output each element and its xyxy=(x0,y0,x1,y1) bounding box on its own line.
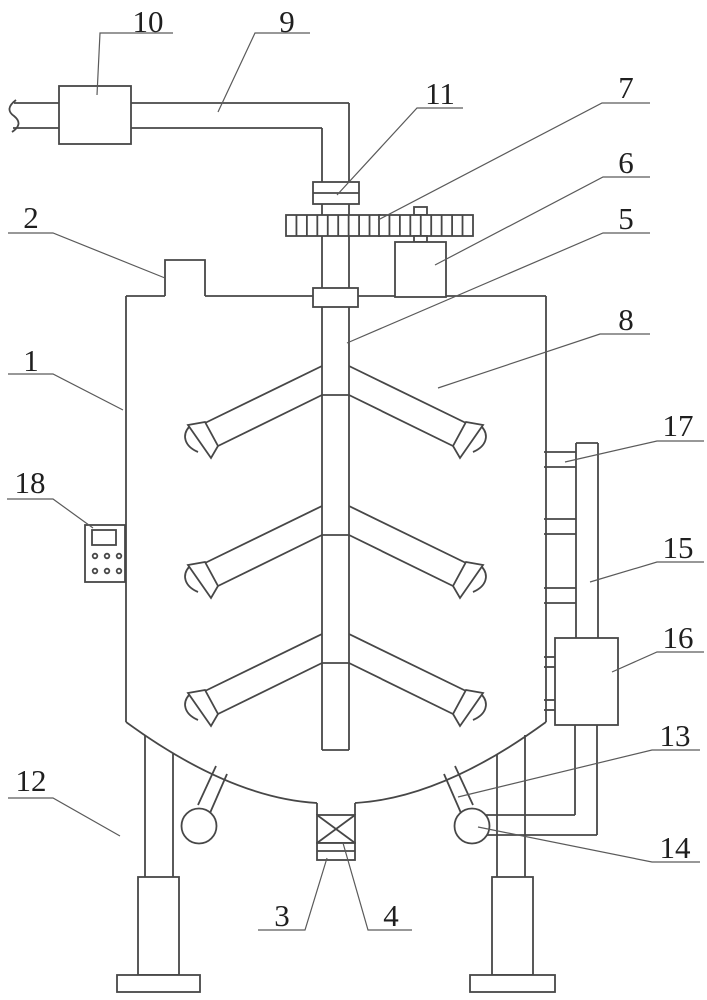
control-panel xyxy=(85,525,125,582)
label-1-tank-shell: 1 xyxy=(8,343,123,410)
leader-line-18 xyxy=(7,499,93,528)
label-3-discharge-collar: 3 xyxy=(258,858,327,933)
leader-line-7 xyxy=(378,103,650,220)
ball-joint-right xyxy=(455,809,490,844)
leader-line-9 xyxy=(218,33,310,112)
paddle-blade xyxy=(453,422,483,458)
paddle-blade xyxy=(188,422,218,458)
leg-lower-left xyxy=(138,877,179,975)
label-text-18: 18 xyxy=(15,465,46,500)
agitator-arm xyxy=(185,506,322,598)
leader-line-17 xyxy=(565,441,704,462)
label-text-17: 17 xyxy=(663,408,694,443)
mixing-tank-diagram: 123456789101112131415161718 xyxy=(0,0,707,1000)
leader-line-12 xyxy=(8,798,120,836)
agitator-arm xyxy=(349,634,486,726)
label-11-shaft-coupling: 11 xyxy=(337,76,463,195)
label-15-riser-pipe: 15 xyxy=(590,530,704,582)
pinion-stub xyxy=(414,207,427,215)
label-text-10: 10 xyxy=(133,4,164,39)
dished-bottom-left xyxy=(126,722,317,803)
label-2-feed-port: 2 xyxy=(8,200,165,278)
foot-right xyxy=(470,975,555,992)
leader-line-3 xyxy=(258,858,327,930)
label-14-ball-joint: 14 xyxy=(478,827,700,865)
label-17-pipe-stub: 17 xyxy=(565,408,704,462)
label-text-15: 15 xyxy=(663,530,694,565)
label-text-9: 9 xyxy=(279,4,295,39)
paddle-blade xyxy=(188,690,218,726)
leader-line-5 xyxy=(347,233,650,343)
paddle-blade xyxy=(453,690,483,726)
side-piping xyxy=(480,443,618,835)
leg-lower-right xyxy=(492,877,533,975)
label-text-2: 2 xyxy=(23,200,39,235)
agitator-arms xyxy=(185,366,486,726)
label-16-circulation-box: 16 xyxy=(612,620,704,672)
foot-left xyxy=(117,975,200,992)
paddle-blade xyxy=(453,562,483,598)
agitator-arm xyxy=(349,506,486,598)
label-text-5: 5 xyxy=(618,201,634,236)
agitator-arm xyxy=(185,634,322,726)
ball-joint-left xyxy=(182,809,217,844)
label-text-11: 11 xyxy=(425,76,455,111)
leader-line-1 xyxy=(8,374,123,410)
label-text-14: 14 xyxy=(660,830,692,865)
agitator xyxy=(185,288,486,750)
label-text-7: 7 xyxy=(618,70,634,105)
agitator-arm xyxy=(349,366,486,458)
label-text-13: 13 xyxy=(660,718,691,753)
label-text-1: 1 xyxy=(23,343,39,378)
label-8-tank-interior: 8 xyxy=(438,302,650,388)
feed-pipe-assembly xyxy=(9,86,349,182)
label-text-4: 4 xyxy=(383,898,399,933)
discharge-valve-assembly xyxy=(317,815,355,860)
label-9-feed-pipe: 9 xyxy=(218,4,310,112)
figure-page: 123456789101112131415161718 xyxy=(0,0,707,1000)
feed-port xyxy=(165,260,205,296)
leader-line-8 xyxy=(438,334,650,388)
label-text-3: 3 xyxy=(274,898,290,933)
leader-line-15 xyxy=(590,562,704,582)
leader-line-2 xyxy=(8,233,165,278)
label-text-8: 8 xyxy=(618,302,634,337)
label-text-6: 6 xyxy=(618,145,634,180)
drive-motor xyxy=(395,242,446,297)
gear-right xyxy=(379,215,473,236)
label-text-16: 16 xyxy=(663,620,694,655)
gear-drive xyxy=(286,182,473,297)
label-18-control-panel: 18 xyxy=(7,465,93,528)
tank-shell xyxy=(126,260,546,815)
shaft-gland xyxy=(313,288,358,307)
paddle-blade xyxy=(188,562,218,598)
agitator-arm xyxy=(185,366,322,458)
support-legs xyxy=(117,735,555,992)
leader-line-13 xyxy=(458,750,700,797)
label-12-support-leg: 12 xyxy=(8,763,120,836)
label-7-gear-mesh: 7 xyxy=(378,70,650,220)
gear-left xyxy=(286,215,380,236)
label-13-drain-stub: 13 xyxy=(458,718,700,797)
leader-line-16 xyxy=(612,652,704,672)
label-text-12: 12 xyxy=(16,763,47,798)
label-10-inline-unit: 10 xyxy=(97,4,173,95)
inline-unit xyxy=(59,86,131,144)
circulation-box xyxy=(555,638,618,725)
